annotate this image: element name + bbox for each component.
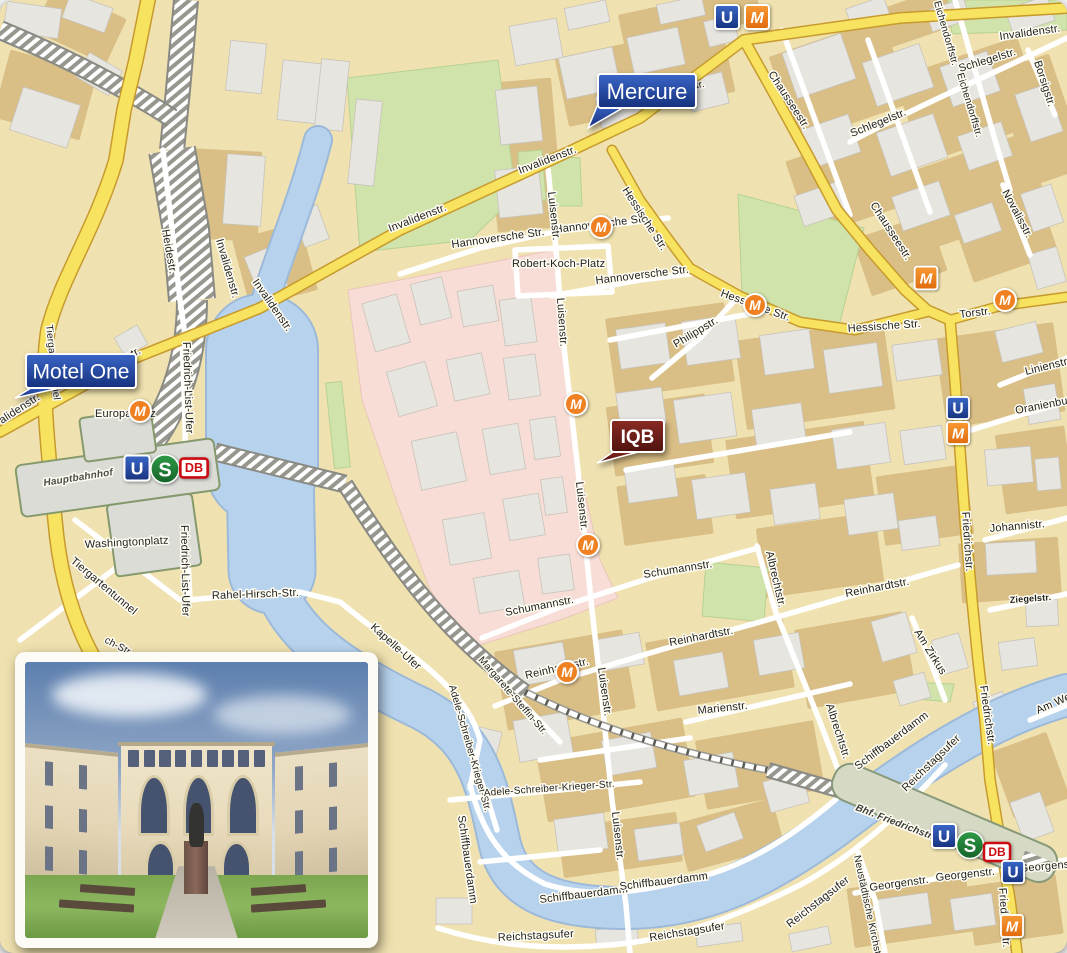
- statue: [189, 803, 204, 847]
- building: [541, 477, 568, 516]
- metro-icon[interactable]: M: [556, 661, 578, 683]
- svg-text:U: U: [938, 827, 950, 846]
- building: [1035, 457, 1062, 491]
- street-label: Friedrich-List-Ufer: [178, 525, 192, 617]
- metro-icon[interactable]: M: [744, 294, 766, 316]
- db-icon[interactable]: DB: [984, 843, 1010, 861]
- svg-text:U: U: [952, 401, 963, 418]
- building: [900, 425, 946, 465]
- building: [499, 296, 537, 346]
- building: [898, 516, 940, 551]
- building: [985, 446, 1034, 486]
- building: [442, 513, 491, 566]
- building: [759, 329, 814, 376]
- arched-window: [138, 775, 169, 836]
- svg-text:M: M: [999, 292, 1011, 308]
- building-left-wing: [25, 743, 118, 885]
- building: [691, 472, 750, 519]
- ubahn-icon[interactable]: U: [932, 824, 956, 848]
- svg-text:M: M: [570, 396, 582, 412]
- metro-icon[interactable]: M: [577, 534, 599, 556]
- building: [223, 154, 266, 226]
- building: [950, 893, 996, 931]
- svg-text:M: M: [920, 271, 933, 288]
- svg-text:S: S: [158, 459, 171, 481]
- db-icon[interactable]: DB: [180, 459, 207, 478]
- building: [823, 342, 883, 393]
- metro-icon[interactable]: M: [745, 5, 769, 29]
- marker-flag-label: Motel One: [33, 361, 130, 384]
- building: [503, 493, 546, 541]
- metro-icon[interactable]: M: [565, 393, 587, 415]
- building: [634, 823, 684, 861]
- svg-text:DB: DB: [185, 461, 203, 475]
- arched-window: [227, 775, 258, 836]
- metro-icon[interactable]: M: [129, 400, 151, 422]
- metro-icon[interactable]: M: [1001, 915, 1023, 937]
- building: [529, 416, 560, 459]
- building: [673, 392, 737, 444]
- ubahn-icon[interactable]: U: [1002, 861, 1024, 883]
- marker-flag-label: Mercure: [607, 79, 688, 104]
- svg-text:M: M: [750, 10, 764, 27]
- svg-text:S: S: [964, 836, 977, 857]
- metro-icon[interactable]: M: [947, 422, 969, 444]
- ubahn-icon[interactable]: U: [124, 455, 149, 480]
- cloud: [214, 695, 351, 734]
- building: [411, 432, 466, 490]
- attic-windows: [128, 750, 265, 767]
- building: [892, 339, 943, 381]
- ubahn-icon[interactable]: U: [715, 5, 739, 29]
- city-map: alidenstr.str.Invalidenstr.Invalidenstr.…: [0, 0, 1067, 953]
- svg-text:M: M: [1006, 920, 1019, 936]
- svg-text:DB: DB: [988, 845, 1006, 859]
- svg-text:U: U: [131, 458, 144, 478]
- ubahn-icon[interactable]: U: [947, 397, 969, 419]
- metro-icon[interactable]: M: [915, 267, 938, 290]
- building: [998, 638, 1038, 671]
- building: [503, 354, 541, 400]
- sbahn-icon[interactable]: S: [151, 455, 179, 483]
- building: [844, 493, 899, 536]
- svg-text:M: M: [561, 664, 573, 680]
- svg-text:M: M: [582, 537, 594, 553]
- svg-text:M: M: [134, 403, 146, 419]
- metro-icon[interactable]: M: [994, 289, 1016, 311]
- building-right-wing: [275, 743, 368, 885]
- svg-text:M: M: [749, 297, 761, 313]
- metro-icon[interactable]: M: [590, 216, 612, 238]
- building: [457, 285, 499, 327]
- building: [770, 483, 821, 525]
- svg-text:M: M: [595, 219, 607, 235]
- building: [538, 554, 575, 594]
- building: [482, 423, 525, 475]
- svg-text:U: U: [1007, 865, 1018, 882]
- building: [985, 541, 1037, 576]
- street-label: Robert-Koch-Platz: [512, 258, 605, 270]
- building: [225, 40, 266, 93]
- building-cornice: [118, 742, 276, 746]
- building: [509, 18, 563, 66]
- marker-flag-label: IQB: [621, 427, 655, 448]
- sbahn-icon[interactable]: S: [957, 832, 984, 859]
- statue-pedestal: [184, 841, 208, 893]
- cloud: [52, 673, 206, 717]
- building: [436, 898, 472, 924]
- svg-text:M: M: [952, 427, 965, 443]
- building: [831, 422, 890, 469]
- svg-text:U: U: [721, 8, 733, 27]
- building-photo: [25, 662, 368, 938]
- photo-inset: [15, 652, 378, 948]
- building: [495, 86, 543, 145]
